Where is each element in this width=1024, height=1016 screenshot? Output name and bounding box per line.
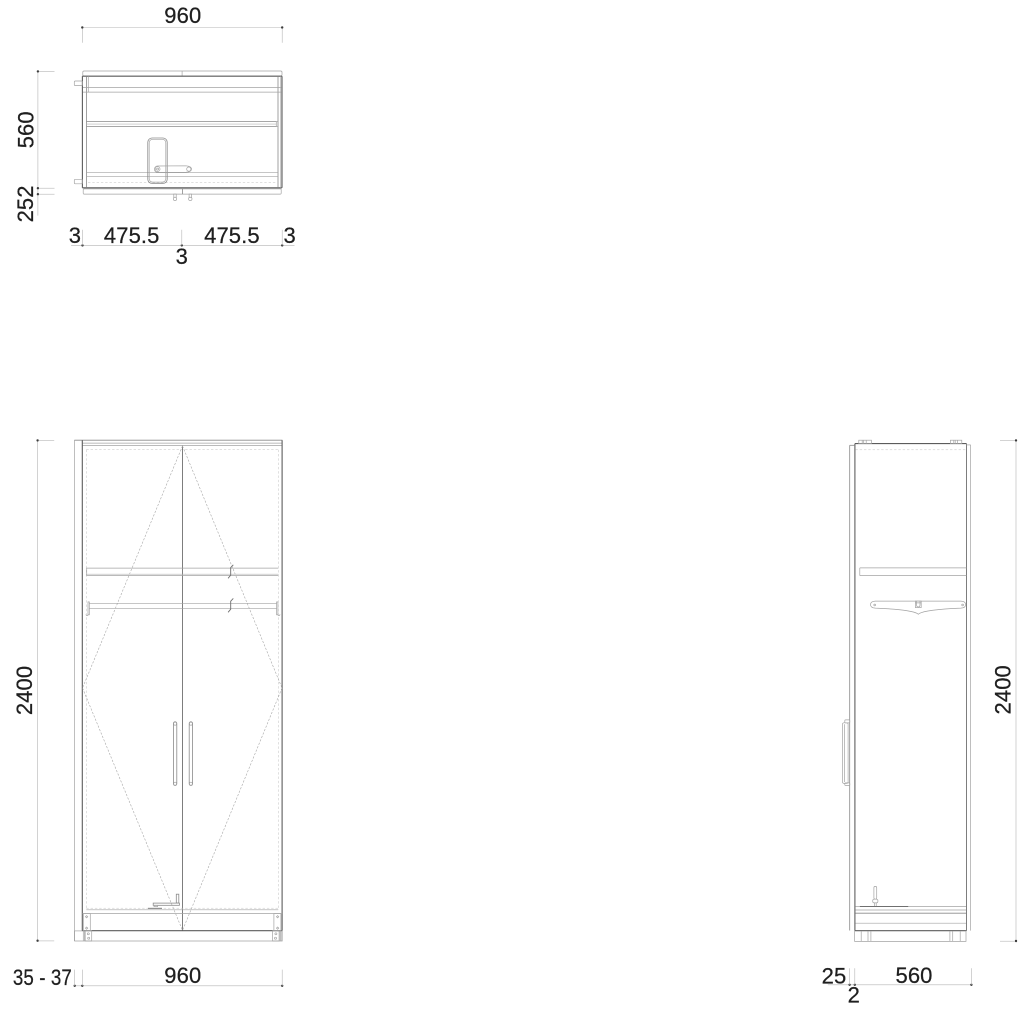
svg-text:2: 2 bbox=[848, 983, 860, 1008]
svg-text:560: 560 bbox=[895, 963, 932, 988]
svg-text:3: 3 bbox=[69, 223, 81, 248]
svg-text:960: 960 bbox=[164, 3, 201, 28]
svg-text:475.5: 475.5 bbox=[204, 223, 260, 248]
svg-text:3: 3 bbox=[176, 244, 188, 269]
svg-text:3: 3 bbox=[284, 223, 296, 248]
svg-text:2400: 2400 bbox=[12, 666, 37, 715]
svg-text:560: 560 bbox=[14, 111, 39, 148]
svg-text:35 - 37: 35 - 37 bbox=[13, 965, 72, 990]
svg-text:2400: 2400 bbox=[991, 665, 1016, 714]
svg-text:475.5: 475.5 bbox=[104, 223, 160, 248]
svg-text:25: 25 bbox=[822, 963, 847, 988]
svg-text:960: 960 bbox=[164, 963, 201, 988]
svg-text:252: 252 bbox=[13, 185, 38, 222]
